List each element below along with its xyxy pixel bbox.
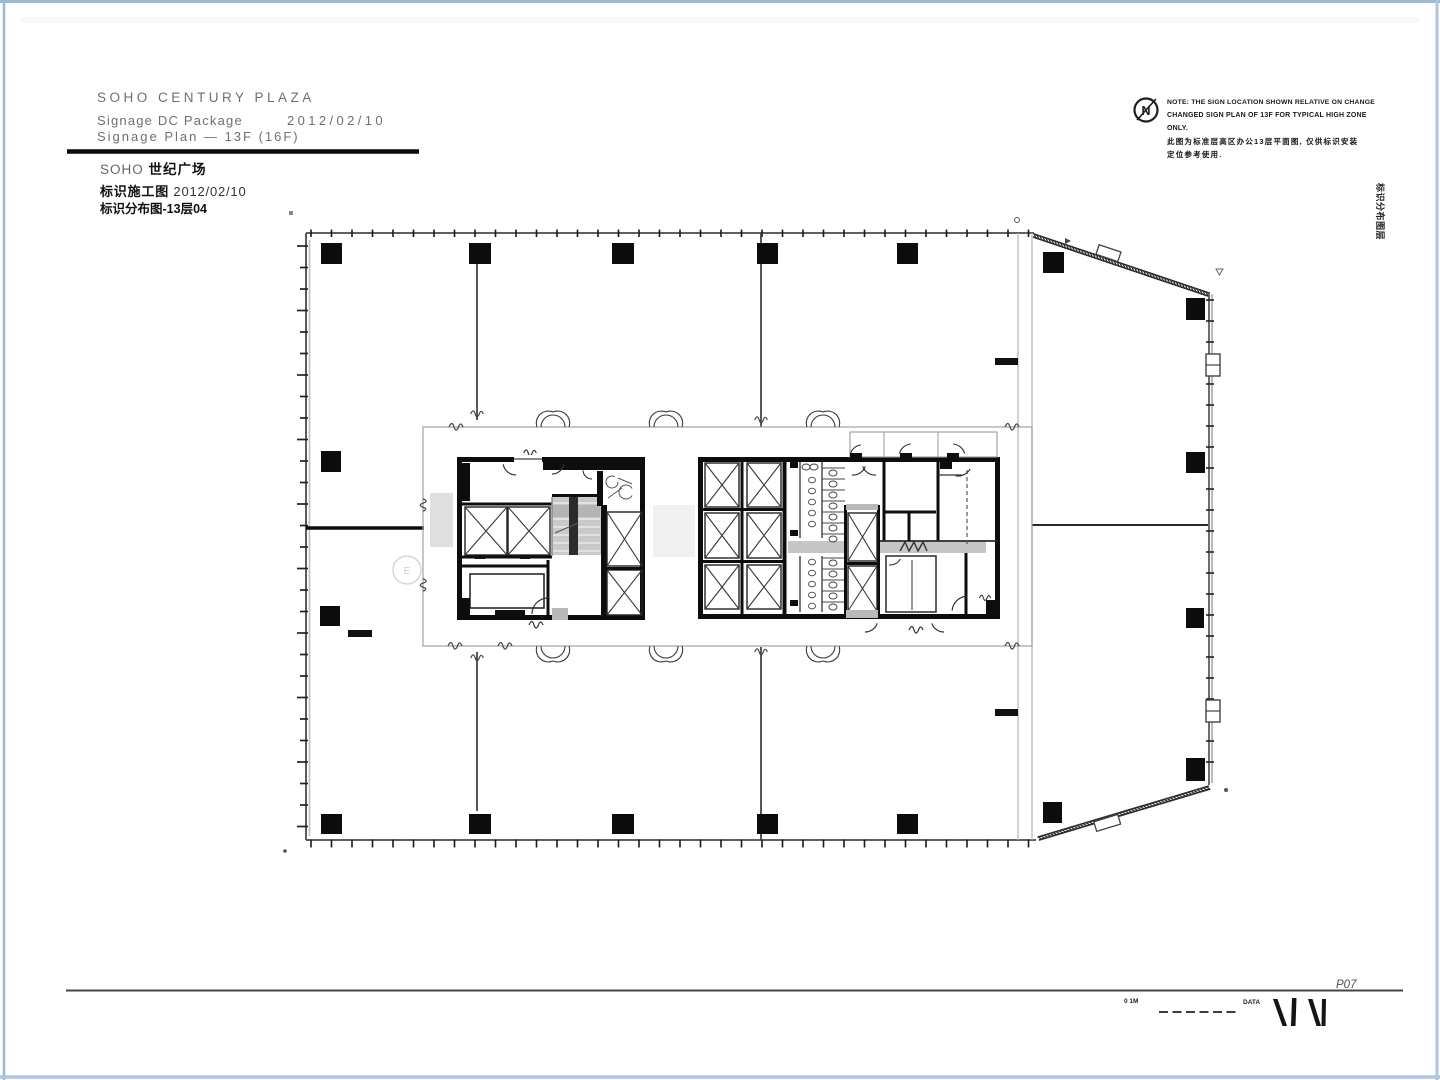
svg-text:Signage Plan — 13F (16F): Signage Plan — 13F (16F) <box>97 129 300 144</box>
svg-text:DATA: DATA <box>1243 999 1260 1006</box>
svg-text:2012/02/10: 2012/02/10 <box>287 113 386 128</box>
svg-text:ONLY.: ONLY. <box>1167 125 1188 132</box>
svg-text:SOHO CENTURY PLAZA: SOHO CENTURY PLAZA <box>97 90 315 105</box>
svg-text:Signage DC Package: Signage DC Package <box>97 113 243 128</box>
svg-text:定位参考使用.: 定位参考使用. <box>1167 149 1222 159</box>
svg-text:此图为标准层高区办公13层平面图, 仅供标识安装: 此图为标准层高区办公13层平面图, 仅供标识安装 <box>1167 136 1358 146</box>
svg-text:E: E <box>404 566 411 577</box>
svg-text:N: N <box>1141 104 1150 118</box>
svg-text:0 1M: 0 1M <box>1124 998 1138 1005</box>
svg-text:SOHO 世纪广场: SOHO 世纪广场 <box>100 161 207 177</box>
svg-text:标识分布图-13层04: 标识分布图-13层04 <box>99 201 207 216</box>
svg-text:NOTE: THE SIGN LOCATION SHOWN: NOTE: THE SIGN LOCATION SHOWN RELATIVE O… <box>1167 99 1375 106</box>
svg-text:标识分布图层: 标识分布图层 <box>1375 182 1386 240</box>
svg-text:标识施工图 2012/02/10: 标识施工图 2012/02/10 <box>99 184 247 199</box>
svg-text:CHANGED SIGN PLAN OF 13F FOR T: CHANGED SIGN PLAN OF 13F FOR TYPICAL HIG… <box>1167 112 1367 119</box>
svg-text:P07: P07 <box>1336 979 1357 991</box>
